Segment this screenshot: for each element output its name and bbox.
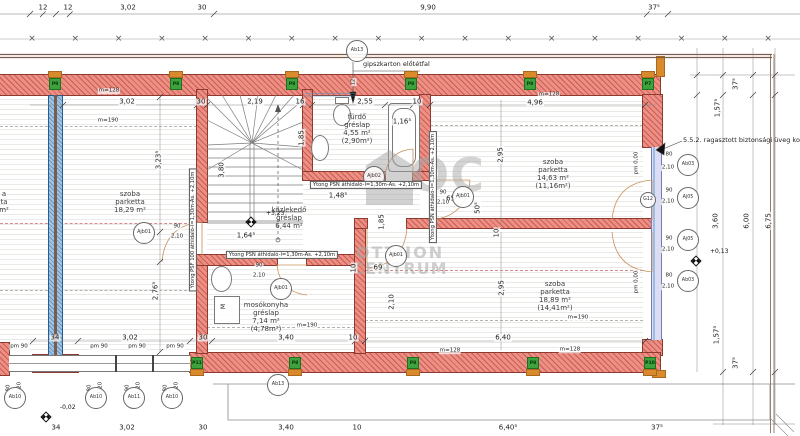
dimension-label: 90 <box>439 190 448 196</box>
dimension-label: 37⁵ <box>733 77 740 91</box>
grid-cross-icon: × <box>288 34 296 44</box>
grid-cross-icon: × <box>72 34 80 44</box>
dimension-label: 2,10 <box>661 165 675 171</box>
dimension-label: 12 <box>38 5 49 12</box>
pilaster-marker: P11 <box>191 357 203 369</box>
room-label-line: szoba <box>85 190 175 198</box>
room-label: mosókonyhagréslap7,14 m²(4,78m²) <box>221 301 311 333</box>
dimension-label: 37⁵ <box>647 5 661 12</box>
opening-marker: Ab11 <box>123 387 145 409</box>
dimension-label: pm 90 <box>9 344 29 350</box>
dimension-label: 2,76⁵ <box>153 281 160 301</box>
dimension-label: 3,02 <box>119 5 137 12</box>
level-label: -0,02 <box>60 404 76 411</box>
dimension-label: 10 <box>352 425 363 432</box>
opening-marker: Aj05 <box>677 229 699 251</box>
pilaster-cap <box>170 72 182 77</box>
pilaster-cap <box>642 72 654 77</box>
dimension-label: 37⁵ <box>650 425 664 432</box>
room-label-line: gréslap <box>221 309 311 317</box>
opening-marker: Ajb01 <box>385 245 407 267</box>
grid-cross-icon: × <box>764 34 772 44</box>
dimension-label: 2,19 <box>246 99 264 106</box>
dimension-label: 2,10 <box>389 293 396 311</box>
pilaster-marker: P8 <box>407 357 419 369</box>
grid-cross-icon: × <box>201 34 209 44</box>
lintel-label: Ytong PSF 100 áthidaló-l=1,30m-As. +2,10… <box>189 169 197 292</box>
dimension-label: 3,02 <box>121 335 139 342</box>
dimension-label: 2,10 <box>436 200 450 206</box>
dimension-label: 50⁵ <box>475 201 482 215</box>
dimension-label: 2,95 <box>499 279 506 297</box>
grid-cross-icon: × <box>28 34 36 44</box>
dimension-label: 30 <box>198 425 209 432</box>
dimension-label: 12 <box>352 78 357 86</box>
room-label-line: 18,89 m² <box>510 296 600 304</box>
room-label-line: szoba <box>510 280 600 288</box>
dimension-label: pm 0,00 <box>634 151 640 176</box>
pilaster-marker: P8 <box>527 357 539 369</box>
grid-cross-icon: × <box>245 34 253 44</box>
dimension-label: 3,80 <box>219 161 226 179</box>
grid-cross-icon: × <box>158 34 166 44</box>
dimension-label: m=190 <box>567 315 589 321</box>
dimension-label: pm 90 <box>127 344 147 350</box>
grid-cross-icon: × <box>548 34 556 44</box>
room-label: szobaparketta18,29 m² <box>85 190 175 214</box>
dimension-label: 1,85 <box>299 129 306 147</box>
dimension-label: 6,40 <box>494 335 512 342</box>
grid-cross-icon: × <box>418 34 426 44</box>
grid-cross-icon: × <box>115 34 123 44</box>
dimension-label: 10 <box>348 335 359 342</box>
opening-marker: Ab13 <box>346 40 368 62</box>
dimension-label: 34 <box>50 335 61 342</box>
annotations-layer: 12123,02309,9037⁵m=1283,02302,19162,5510… <box>0 0 800 436</box>
pilaster-cap <box>286 72 298 77</box>
dimension-label: 30 <box>198 335 209 342</box>
pilaster-marker: P8 <box>405 78 417 90</box>
opening-marker: Ajb01 <box>270 278 292 300</box>
pilaster-marker: P8 <box>286 78 298 90</box>
room-label-line: a <box>0 190 49 198</box>
opening-marker: Ab10 <box>85 387 107 409</box>
level-marker-icon <box>690 255 701 266</box>
grid-cross-icon: × <box>375 34 383 44</box>
dimension-label: 1,48⁵ <box>328 193 348 200</box>
room-label-line: ta <box>0 198 49 206</box>
room-label: fürdőgréslap4,55 m²(2,90m²) <box>312 113 402 145</box>
dimension-label: 69 <box>373 265 384 272</box>
room-label-line: parketta <box>85 198 175 206</box>
pilaster-marker: P9 <box>49 78 61 90</box>
opening-marker: Ab10 <box>161 387 183 409</box>
pilaster-cap <box>644 370 656 375</box>
dimension-label: 80 <box>665 273 674 279</box>
pilaster-cap <box>527 370 539 375</box>
dimension-label: 3,60 <box>713 212 720 230</box>
room-label: szobaparketta14,63 m²(11,16m²) <box>508 158 598 190</box>
grid-cross-icon: × <box>461 34 469 44</box>
room-label: atam² <box>0 190 49 214</box>
room-label-line: 6,44 m² <box>244 222 334 230</box>
dimension-label: m=128 <box>439 348 461 354</box>
opening-marker: G12 <box>640 192 656 208</box>
level-label: +0,13 <box>710 248 728 255</box>
pilaster-cap <box>191 370 203 375</box>
dimension-label: 16 <box>295 99 306 106</box>
room-label-line: (11,16m²) <box>508 182 598 190</box>
opening-marker: Ab10 <box>4 387 26 409</box>
dimension-label: 3,02 <box>118 99 136 106</box>
dimension-label: 90 <box>255 263 264 269</box>
dimension-label: 9,90 <box>419 5 437 12</box>
dimension-label: 10 <box>494 228 501 239</box>
dimension-label: pm 90 <box>165 344 185 350</box>
room-label-line: mosókonyha <box>221 301 311 309</box>
floor-plan-drawing: M <box>0 0 800 436</box>
opening-marker: Ajb01 <box>452 186 474 208</box>
pilaster-marker: P8 <box>170 78 182 90</box>
room-label-line: 14,63 m² <box>508 174 598 182</box>
lintel-label: Ytong PSN áthidaló-l=1,30m-As. +2,10m <box>310 181 422 189</box>
dimension-label: 2,95 <box>498 146 505 164</box>
grid-cross-icon: × <box>634 34 642 44</box>
dimension-label: 37⁵ <box>733 356 740 370</box>
grid-cross-icon: × <box>721 34 729 44</box>
room-label: szobaparketta18,89 m²(14,41m²) <box>510 280 600 312</box>
dimension-label: 90 <box>665 188 674 194</box>
dimension-label: m=128 <box>538 92 560 98</box>
dimension-label: 4,96 <box>526 100 544 107</box>
dimension-label: 1,57⁵ <box>714 325 721 345</box>
dimension-label: 6,75 <box>766 212 773 230</box>
room-label-line: 18,29 m² <box>85 206 175 214</box>
pilaster-marker: P8 <box>289 357 301 369</box>
lintel-label: Ytong PSN áthidaló-l=1,30m-As. +2,10m <box>226 251 338 259</box>
dimension-label: 3,23⁵ <box>156 150 163 170</box>
grid-cross-icon: × <box>331 34 339 44</box>
grid-cross-icon: × <box>678 34 686 44</box>
dimension-label: 2,10 <box>661 284 675 290</box>
room-label-line: 4,55 m² <box>312 129 402 137</box>
room-label-line: parketta <box>510 288 600 296</box>
dimension-label: 12 <box>63 5 74 12</box>
dimension-label: 2,10 <box>661 199 675 205</box>
dimension-label: 2,10 <box>661 247 675 253</box>
dimension-label: pm 0,00 <box>634 270 640 295</box>
room-label-line: (2,90m²) <box>312 137 402 145</box>
dimension-label: 1,85 <box>379 213 386 231</box>
room-label-line: (14,41m²) <box>510 304 600 312</box>
pilaster-cap <box>407 370 419 375</box>
dimension-label: 1,64⁵ <box>236 233 256 240</box>
dimension-label: 1,57⁵ <box>715 98 722 118</box>
dimension-label: 3,02 <box>118 425 136 432</box>
dimension-label: 30 <box>197 5 208 12</box>
level-marker-icon <box>40 411 51 422</box>
room-label-line: m² <box>0 206 49 214</box>
opening-marker: Ab03 <box>677 154 699 176</box>
pilaster-cap <box>49 72 61 77</box>
room-label-line: (4,78m²) <box>221 325 311 333</box>
dimension-label: 10 <box>412 99 423 106</box>
pilaster-marker: P7 <box>642 78 654 90</box>
dimension-label: 90 <box>665 236 674 242</box>
pilaster-marker: P8 <box>524 78 536 90</box>
room-label-line: fürdő <box>312 113 402 121</box>
dimension-label: 6,00 <box>744 212 751 230</box>
grid-cross-icon: × <box>505 34 513 44</box>
opening-marker: Ajb01 <box>133 222 155 244</box>
dimension-label: 80 <box>665 152 674 158</box>
room-label-line: 7,14 m² <box>221 317 311 325</box>
room-label-line: szoba <box>508 158 598 166</box>
dimension-label: 3,40 <box>277 335 295 342</box>
dimension-label: pm 90 <box>89 344 109 350</box>
dimension-label: 3,40 <box>277 425 295 432</box>
room-label-line: parketta <box>508 166 598 174</box>
dimension-label: 10 <box>351 263 358 274</box>
dimension-label: 34 <box>51 425 62 432</box>
dimension-label: 6,40⁵ <box>498 425 518 432</box>
dimension-label: 2,55 <box>356 99 374 106</box>
opening-marker: Aj05 <box>677 187 699 209</box>
pilaster-cap <box>524 72 536 77</box>
dimension-label: 30 <box>196 99 207 106</box>
pilaster-cap <box>289 370 301 375</box>
pilaster-marker: P10 <box>644 357 656 369</box>
grid-cross-icon: × <box>591 34 599 44</box>
lintel-label: Ytong PSN áthidaló-l=1,30m-As. +2,10m <box>429 131 437 243</box>
dimension-label: m=128 <box>559 347 581 353</box>
room-label: közlekedőgréslap6,44 m² <box>244 206 334 230</box>
dimension-label: 2,10 <box>170 234 184 240</box>
dimension-label: m=128 <box>98 88 120 94</box>
dimension-label: 2,10 <box>252 273 266 279</box>
pilaster-cap <box>405 72 417 77</box>
room-label-line: közlekedő <box>244 206 334 214</box>
opening-marker: Ab03 <box>677 270 699 292</box>
opening-marker: Ab13 <box>267 374 289 396</box>
room-label-line: gréslap <box>244 214 334 222</box>
room-label-line: gréslap <box>312 121 402 129</box>
dimension-label: 90 <box>173 224 182 230</box>
dimension-label: m=190 <box>97 118 119 124</box>
